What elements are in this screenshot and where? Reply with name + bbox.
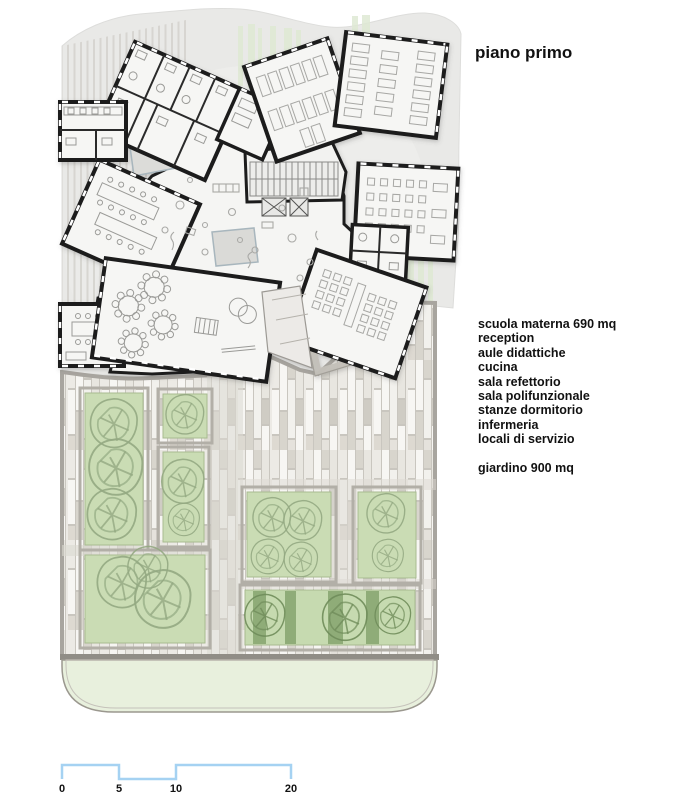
- scale-bar: 0 5 10 20: [59, 765, 297, 795]
- room-aula-materna: [92, 258, 280, 382]
- garden-curb: [60, 654, 439, 660]
- scale-label-0: 0: [59, 783, 65, 795]
- scale-bar-line: [62, 765, 291, 779]
- scale-label-20: 20: [285, 783, 297, 795]
- scale-label-5: 5: [116, 783, 122, 795]
- room-cucina: [60, 102, 126, 160]
- site-plan: 0 5 10 20: [0, 0, 688, 800]
- room-dormitorio-b: [335, 32, 448, 138]
- lawn-band: [62, 660, 437, 712]
- scale-label-10: 10: [170, 783, 182, 795]
- building: [60, 32, 458, 382]
